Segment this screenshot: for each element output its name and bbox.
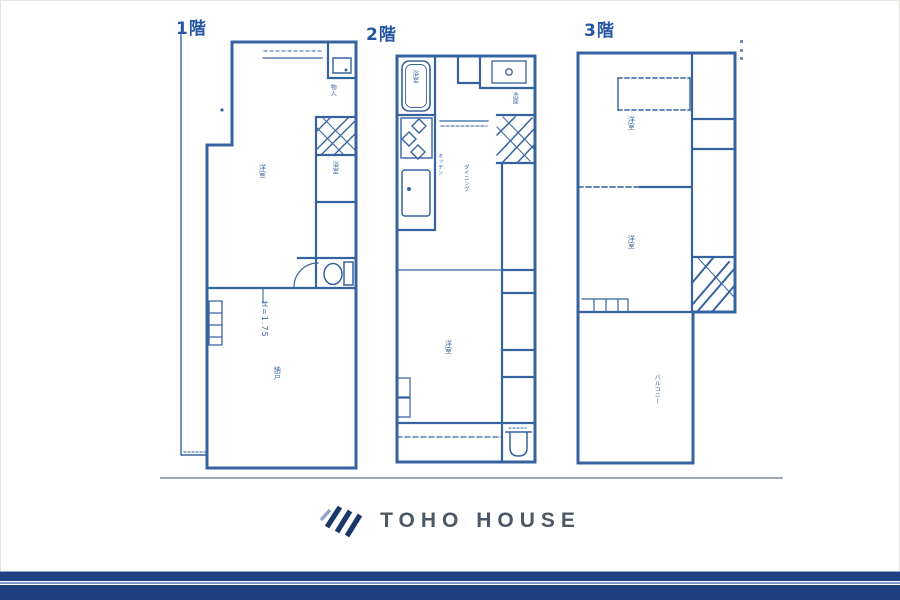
- stripe-navy-thick: [0, 585, 900, 600]
- footer-logo: TOHO HOUSE: [0, 496, 900, 544]
- room-label-3f-upper: 洋室: [627, 116, 634, 130]
- floor-label-1f: 1階: [176, 21, 207, 38]
- wall-closet-1f: [209, 301, 222, 345]
- stove-icon-2f: [401, 118, 432, 159]
- room-label-1f-closet: 物入: [329, 84, 335, 96]
- bathtub-icon-2f: [402, 61, 430, 111]
- floor-label-2f: 2階: [366, 27, 397, 44]
- room-label-1f-storage: 納戸: [273, 366, 280, 380]
- room-label-3f-balcony: バルコニー: [653, 374, 659, 404]
- floor-plan-drawing: [0, 0, 900, 495]
- floor-plan-3f: [578, 40, 743, 463]
- dots-3f: [740, 40, 743, 60]
- washbasin-icon-1f: [333, 58, 351, 73]
- room-label-1f-bath: 浴室: [331, 161, 338, 174]
- room-label-2f-washroom: 洗面: [511, 92, 517, 104]
- porch-line-1f: [181, 34, 206, 455]
- stairs-hatch-1f: [316, 117, 356, 155]
- washbasin-icon-2f: [492, 61, 526, 83]
- floor-plan-page: 1階 2階 3階 洋室 物入 浴室 納戸 H=1.75 浴室 洗面 キッチン ダ…: [0, 0, 900, 600]
- floor-plan-1f: [181, 34, 356, 468]
- room-label-3f-mid: 洋室: [627, 235, 634, 249]
- room-label-2f-kitchen: キッチン: [436, 153, 442, 175]
- toho-logo-icon: [319, 501, 365, 539]
- toilet-icon-1f: [324, 262, 353, 285]
- floor-plan-scan: 1階 2階 3階 洋室 物入 浴室 納戸 H=1.75 浴室 洗面 キッチン ダ…: [0, 0, 900, 495]
- room-label-2f-dining: ダイニング: [462, 164, 468, 192]
- stairs-hatch-2f: [497, 117, 535, 163]
- floor-label-3f: 3階: [584, 23, 615, 40]
- sink-icon-2f: [402, 170, 430, 216]
- room-label-2f-main: 洋室: [444, 340, 451, 354]
- outline-1f: [207, 42, 356, 468]
- steps-icon-3f: [582, 299, 628, 312]
- ceiling-height-note-1f: H=1.75: [260, 301, 268, 338]
- counter-2f: [440, 121, 488, 126]
- toilet-icon-2f: [506, 428, 531, 456]
- room-label-2f-bath: 浴室: [411, 70, 418, 83]
- door-arc-1f: [294, 263, 318, 287]
- stripe-navy-thin: [0, 572, 900, 581]
- bottom-bars: [0, 571, 900, 600]
- wall-fixtures-2f: [399, 378, 410, 417]
- room-label-1f-main: 洋室: [258, 164, 265, 178]
- stairs-hatch-3f: [692, 258, 735, 312]
- floor-plan-2f: [397, 56, 535, 462]
- closet-dashed-3f: [618, 78, 690, 110]
- logo-text: TOHO HOUSE: [380, 510, 581, 531]
